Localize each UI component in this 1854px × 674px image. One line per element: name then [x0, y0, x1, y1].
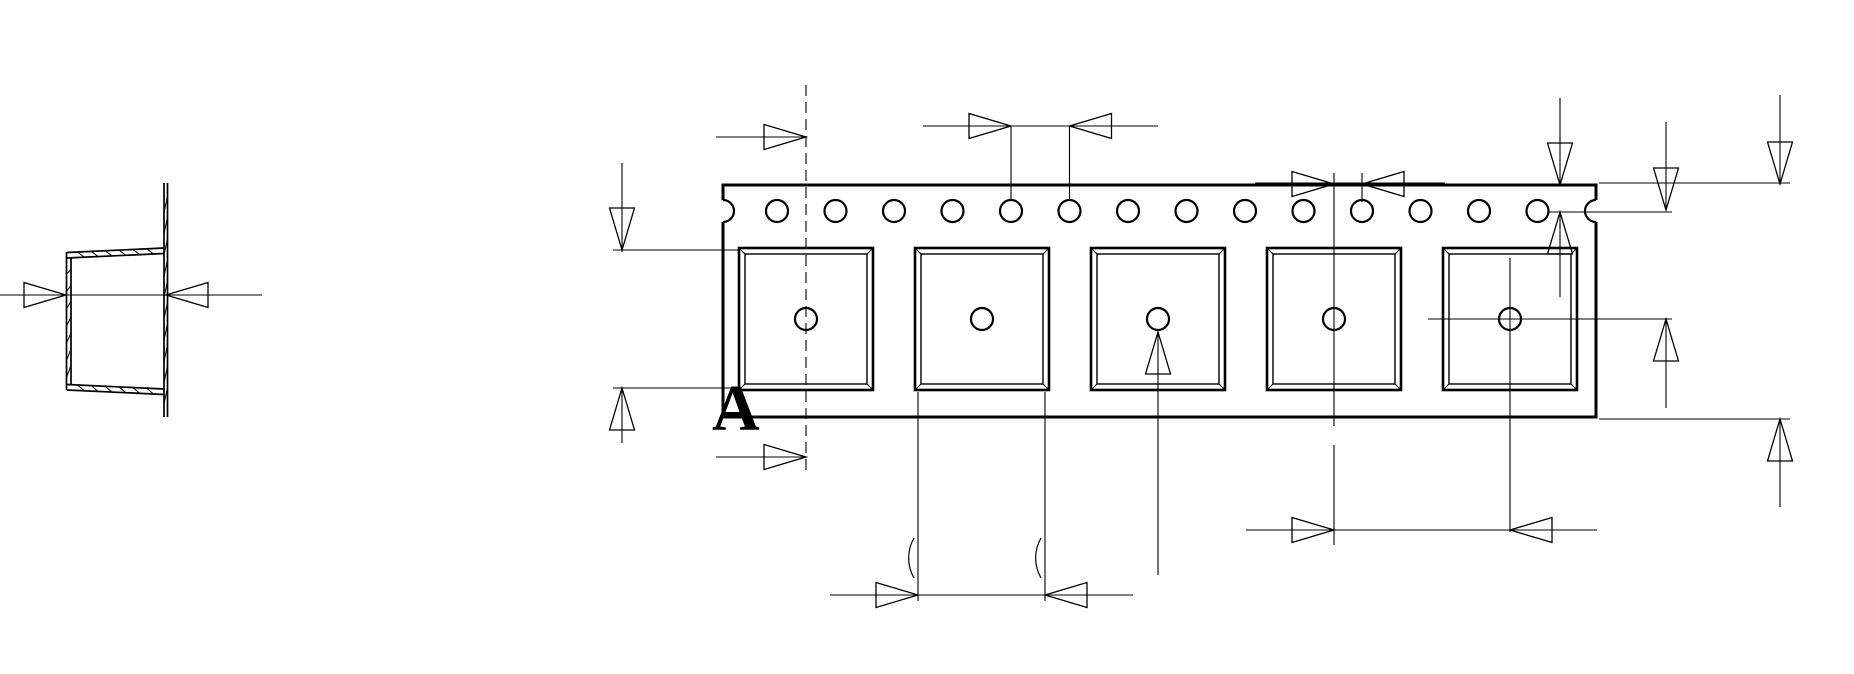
pocket-center-hole: [971, 308, 993, 330]
sprocket-hole: [825, 200, 847, 222]
sprocket-hole: [766, 200, 788, 222]
hatch-tick: [105, 251, 112, 256]
sprocket-hole: [1293, 200, 1315, 222]
sprocket-hole: [1234, 200, 1256, 222]
sprocket-hole: [883, 200, 905, 222]
hatch-tick: [91, 251, 98, 256]
hatch-tick: [133, 249, 140, 254]
hatch-tick: [147, 249, 154, 254]
sprocket-hole: [1117, 200, 1139, 222]
pocket-center-hole: [1147, 308, 1169, 330]
erased-text-fragment: [909, 538, 914, 578]
sprocket-hole: [1351, 200, 1373, 222]
carrier-tape-drawing: A: [0, 0, 1854, 674]
sprocket-hole: [1527, 200, 1549, 222]
sprocket-hole: [1410, 200, 1432, 222]
tape-top-view: [712, 185, 1607, 417]
hatch-tick: [119, 250, 126, 255]
sprocket-hole: [1000, 200, 1022, 222]
hatch-tick: [77, 252, 84, 257]
sprocket-hole: [1176, 200, 1198, 222]
section-label-a: A: [712, 372, 760, 445]
sprocket-hole: [942, 200, 964, 222]
erased-text-fragment: [1036, 538, 1041, 578]
section-label-group: A: [712, 372, 760, 445]
sprocket-hole: [1468, 200, 1490, 222]
sprocket-hole: [1059, 200, 1081, 222]
engineering-drawing-page: A: [0, 0, 1854, 674]
cross-section-view: [67, 183, 168, 417]
